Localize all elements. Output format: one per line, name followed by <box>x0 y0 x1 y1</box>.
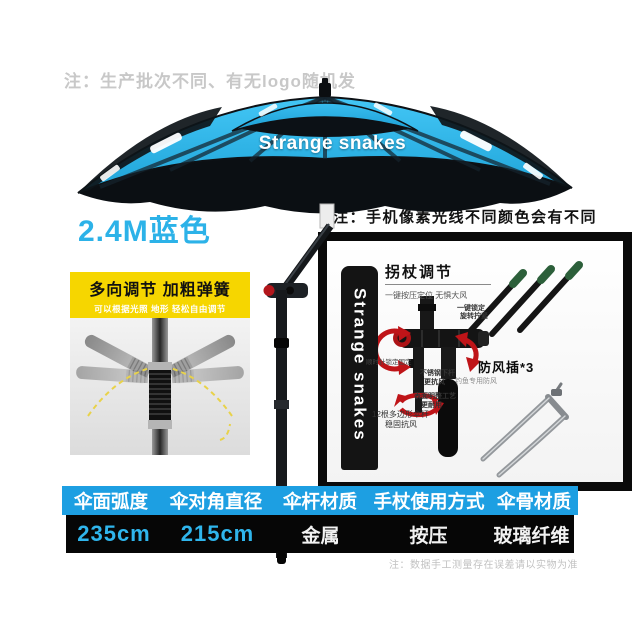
umbrella-brand-text: Strange snakes <box>250 133 415 155</box>
lower-note-3: 钓鱼专用防风 <box>455 376 497 386</box>
rotate-note: 顺时针锁定固定 <box>366 356 412 366</box>
lower-note-2: 更抗风 <box>424 377 445 387</box>
title-underline <box>385 284 491 285</box>
product-image: 注：生产批次不同、有无logo随机发 <box>0 0 640 640</box>
pole-lock-collar <box>274 338 289 348</box>
spec-header-diameter: 伞对角直径 <box>160 488 272 514</box>
spring-title: 多向调节 加粗弹簧 <box>89 276 230 300</box>
craft-note-2: 更耐用 <box>421 400 442 410</box>
joint-bolt <box>286 287 294 295</box>
stake-note-2: 旋转拧紧 <box>460 311 488 321</box>
stand-section-subtitle: 一键按压定位 无惧大风 <box>385 290 467 301</box>
spring-collar-top <box>148 362 172 371</box>
top-cap-tip <box>322 78 328 84</box>
top-cap <box>319 83 331 97</box>
spec-header-arc: 伞面弧度 <box>62 488 160 514</box>
spec-value-diameter: 215cm <box>162 521 273 547</box>
spec-value-arc: 235cm <box>66 521 162 547</box>
spec-table-header: 伞面弧度 伞对角直径 伞杆材质 手杖使用方式 伞骨材质 <box>62 486 578 515</box>
spec-value-handle-use: 按压 <box>368 521 489 548</box>
spring-illustration <box>70 318 250 455</box>
ground-stakes <box>464 265 579 338</box>
spec-value-rib-material: 玻璃纤维 <box>489 521 574 548</box>
spec-header-pole-material: 伞杆材质 <box>272 488 368 514</box>
spec-value-pole-material: 金属 <box>273 521 368 548</box>
joint-red-knob <box>264 285 275 296</box>
spring-collar-bottom <box>148 420 172 429</box>
stand-section-title: 拐杖调节 <box>385 261 453 282</box>
spec-header-handle-use: 手杖使用方式 <box>368 488 490 514</box>
pole-note-2: 稳固抗风 <box>385 419 417 430</box>
pole-mid-collar <box>274 400 289 409</box>
spec-header-rib-material: 伞骨材质 <box>490 488 578 514</box>
spring-subtitle: 可以根据光照 地形 轻松自由调节 <box>94 303 226 315</box>
carry-bag: Strange snakes <box>341 266 378 470</box>
ground-fork <box>483 384 566 475</box>
spring-inset: 多向调节 加粗弹簧 可以根据光照 地形 轻松自由调节 <box>70 272 250 455</box>
spring-banner: 多向调节 加粗弹簧 可以根据光照 地形 轻松自由调节 <box>70 272 250 318</box>
pole-tip <box>277 552 286 564</box>
spring-photo <box>70 318 250 455</box>
measurement-note: 注：数据手工测量存在误差请以实物为准 <box>330 556 578 571</box>
stake-label: 防风插*3 <box>478 357 534 376</box>
pole-highlight <box>284 224 329 286</box>
pole-upper <box>282 226 330 292</box>
carry-bag-brand-text: Strange snakes <box>350 288 370 470</box>
spec-table-values: 235cm 215cm 金属 按压 玻璃纤维 <box>66 515 574 553</box>
